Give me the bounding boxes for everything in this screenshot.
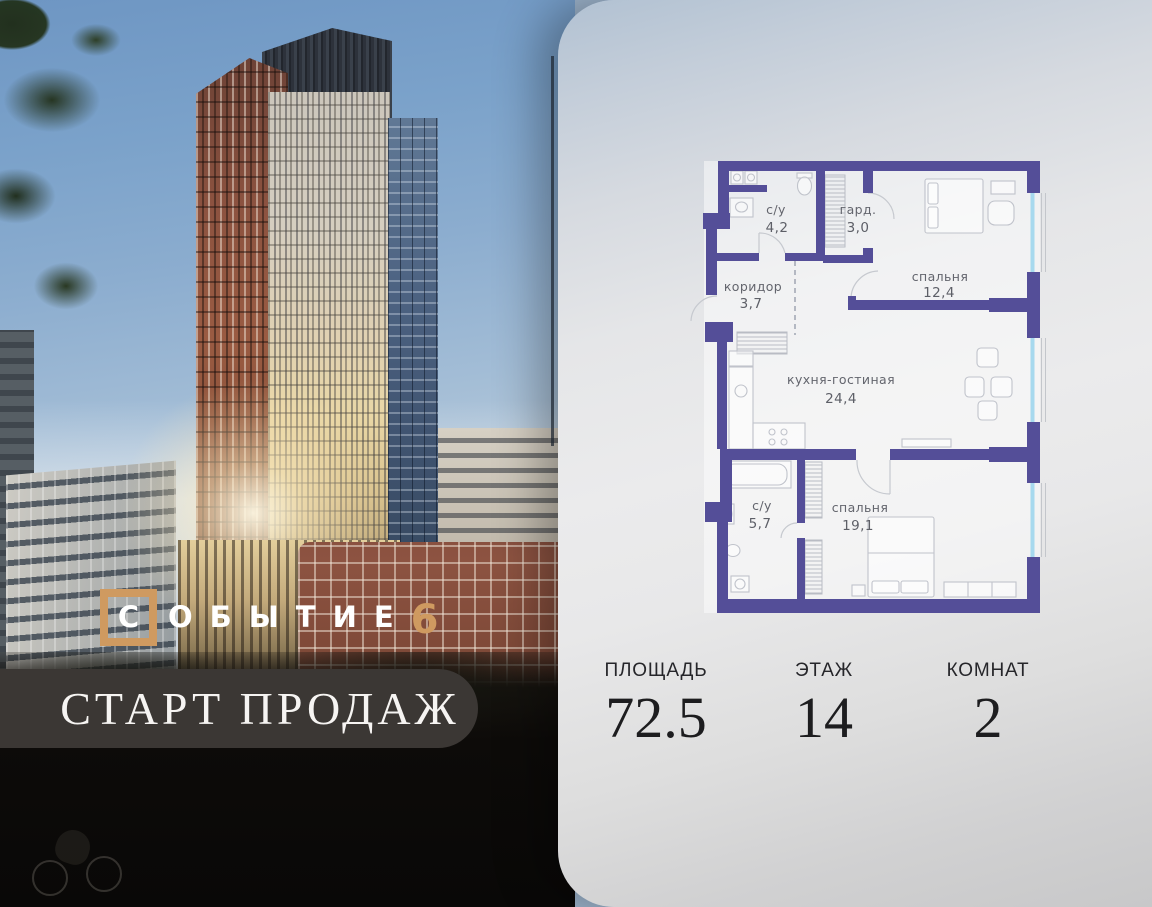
- room-label: с/у: [766, 202, 786, 217]
- construction-crane: [551, 56, 554, 446]
- room-label: гард.: [840, 202, 877, 217]
- room-area: 24,4: [825, 391, 857, 407]
- stats-row: ПЛОЩАДЬ 72.5 ЭТАЖ 14 КОМНАТ 2: [558, 660, 1152, 770]
- bike-wheel-icon: [32, 860, 68, 896]
- stat-rooms: КОМНАТ 2: [903, 660, 1073, 747]
- logo-word: ОБЫТИЕ: [168, 603, 411, 632]
- room-label: спальня: [912, 269, 969, 284]
- stat-label: ЭТАЖ: [739, 660, 909, 682]
- stat-label: ПЛОЩАДЬ: [571, 660, 741, 682]
- stat-value: 2: [903, 689, 1073, 747]
- room-label: с/у: [752, 498, 772, 513]
- cyclist-silhouette: [28, 828, 158, 903]
- tree-leaves: [0, 0, 160, 370]
- logo-number: 6: [411, 600, 439, 640]
- logo-letter-c: С: [118, 603, 139, 632]
- stat-area: ПЛОЩАДЬ 72.5: [571, 660, 741, 747]
- room-area: 3,0: [847, 220, 870, 236]
- logo-sobytie: С ОБЫТИЕ 6: [100, 589, 439, 646]
- room-label: коридор: [724, 279, 782, 294]
- sales-banner-label: СТАРТ ПРОДАЖ: [60, 682, 460, 735]
- tower-glass-slab: [388, 118, 438, 568]
- room-area: 12,4: [923, 285, 955, 301]
- sales-banner: СТАРТ ПРОДАЖ: [0, 669, 478, 748]
- building-photo: [0, 0, 575, 907]
- room-label: спальня: [832, 500, 889, 515]
- bike-wheel-icon: [86, 856, 122, 892]
- room-area: 19,1: [842, 518, 874, 534]
- room-area: 3,7: [740, 296, 763, 312]
- stat-value: 72.5: [571, 689, 741, 747]
- stat-floor: ЭТАЖ 14: [739, 660, 909, 747]
- stat-value: 14: [739, 689, 909, 747]
- promo-banner: С ОБЫТИЕ 6 СТАРТ ПРОДАЖ: [0, 0, 1152, 907]
- info-card: с/у 4,2 гард. 3,0 коридор 3,7 спальня 12…: [558, 0, 1152, 907]
- room-area: 5,7: [749, 516, 772, 532]
- stat-label: КОМНАТ: [903, 660, 1073, 682]
- logo-letter-box: С: [100, 589, 157, 646]
- floor-plan: с/у 4,2 гард. 3,0 коридор 3,7 спальня 12…: [688, 155, 1050, 622]
- room-area: 4,2: [766, 220, 789, 236]
- room-label: кухня-гостиная: [787, 372, 895, 387]
